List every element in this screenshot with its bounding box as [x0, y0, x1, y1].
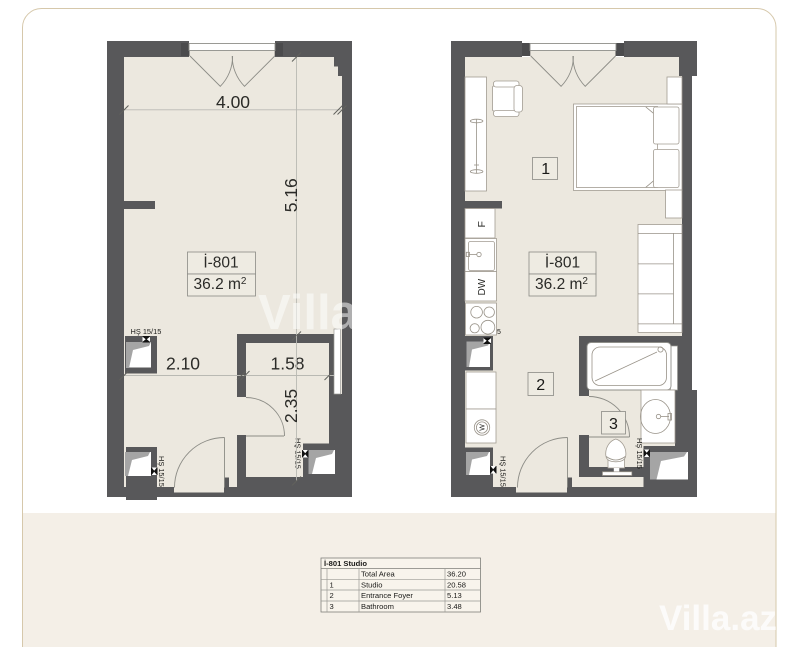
svg-text:5: 5: [497, 329, 501, 336]
svg-text:3.48: 3.48: [447, 602, 462, 611]
svg-text:1.58: 1.58: [270, 354, 304, 374]
svg-text:3: 3: [609, 416, 618, 433]
svg-text:36.20: 36.20: [447, 570, 466, 579]
svg-text:HŞ 15/15: HŞ 15/15: [294, 438, 303, 469]
svg-text:2.35: 2.35: [281, 389, 301, 423]
svg-text:Villa: Villa: [258, 286, 359, 340]
svg-text:HŞ 15/15: HŞ 15/15: [157, 456, 166, 487]
svg-text:4.00: 4.00: [216, 92, 250, 112]
svg-text:Entrance Foyer: Entrance Foyer: [361, 591, 413, 600]
svg-text:5.16: 5.16: [281, 178, 301, 212]
svg-text:İ-801: İ-801: [545, 254, 580, 272]
svg-text:Bathroom: Bathroom: [361, 602, 394, 611]
svg-text:Villa.az: Villa.az: [659, 599, 777, 638]
svg-text:36.2 m2: 36.2 m2: [194, 276, 247, 293]
svg-text:20.58: 20.58: [447, 580, 466, 589]
svg-text:Studio: Studio: [361, 580, 383, 589]
svg-text:5.13: 5.13: [447, 591, 462, 600]
svg-text:İ-801 Studio: İ-801 Studio: [324, 559, 367, 568]
svg-text:HŞ 15/15: HŞ 15/15: [499, 456, 508, 487]
svg-text:1: 1: [541, 161, 550, 178]
svg-text:F: F: [476, 221, 488, 227]
svg-text:İ-801: İ-801: [203, 254, 238, 272]
svg-text:2.10: 2.10: [166, 354, 200, 374]
svg-text:2: 2: [330, 591, 334, 600]
svg-text:Total Area: Total Area: [361, 570, 396, 579]
svg-text:36.2 m2: 36.2 m2: [535, 276, 588, 293]
svg-text:3: 3: [330, 602, 334, 611]
svg-text:1: 1: [330, 580, 334, 589]
svg-text:2: 2: [536, 377, 545, 394]
svg-text:DW: DW: [477, 278, 488, 295]
svg-text:W: W: [480, 424, 487, 431]
svg-text:HŞ 15/15: HŞ 15/15: [131, 327, 162, 336]
svg-text:HŞ 15/15: HŞ 15/15: [635, 438, 644, 469]
